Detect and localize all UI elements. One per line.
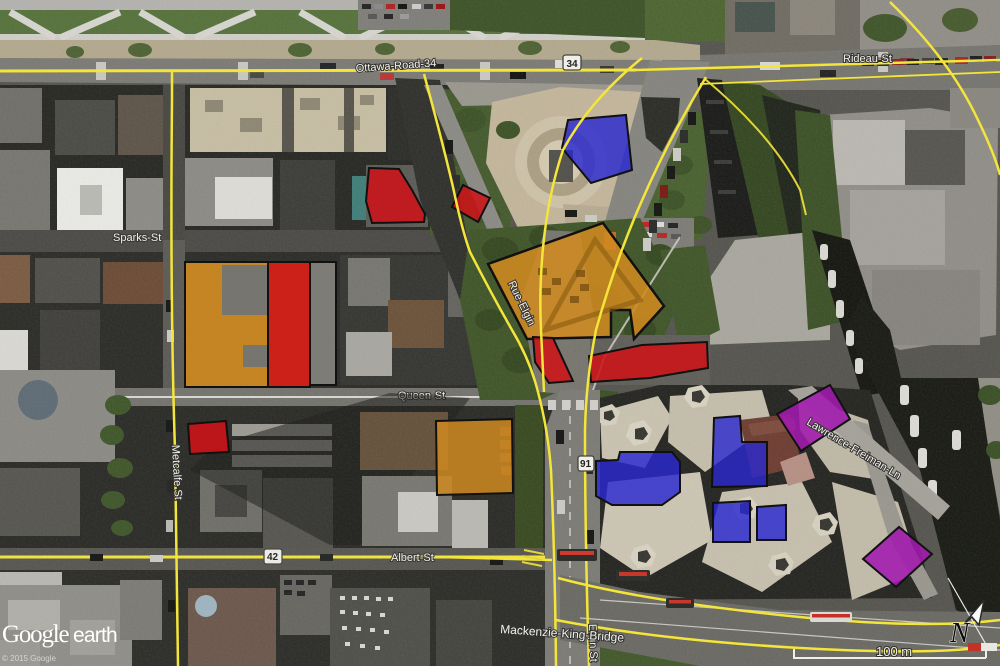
svg-text:34: 34 bbox=[566, 59, 578, 70]
svg-text:© 2015 Google: © 2015 Google bbox=[2, 654, 56, 663]
svg-text:N: N bbox=[949, 617, 971, 649]
svg-text:Google: Google bbox=[2, 621, 70, 648]
svg-text:100 m: 100 m bbox=[876, 644, 912, 659]
svg-text:91: 91 bbox=[580, 459, 592, 470]
svg-text:earth: earth bbox=[73, 624, 117, 647]
svg-text:Rideau-St: Rideau-St bbox=[843, 53, 892, 65]
